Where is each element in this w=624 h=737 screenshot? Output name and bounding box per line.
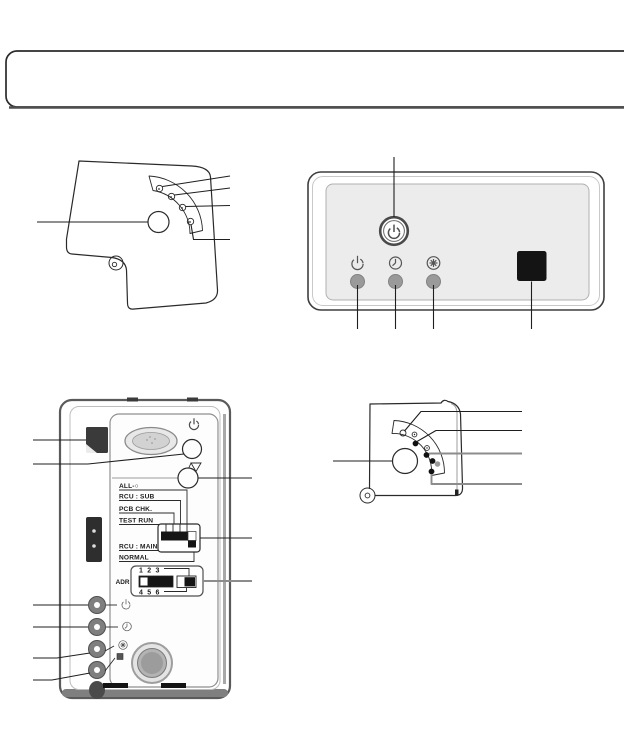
adr-switch-block: 1 2 3 4 5 6 ADR	[116, 566, 252, 597]
mount-tab	[127, 398, 138, 402]
adr-label: ADR	[116, 579, 130, 586]
dip-label-test-run: TEST RUN	[119, 518, 153, 525]
panel-clip	[455, 490, 459, 496]
led-center	[94, 646, 100, 652]
buzzer-oval	[89, 681, 105, 699]
dip-label-pcb-chk: PCB CHK.	[119, 506, 152, 513]
led-dot	[181, 207, 183, 209]
dip-switch-4-slot	[188, 532, 196, 541]
corner-panel-top-diagram	[37, 161, 230, 309]
adr-slide-knob	[185, 577, 196, 586]
led-dot-gray	[435, 461, 441, 467]
callout-line-led1	[163, 176, 231, 187]
mount-bar	[103, 683, 128, 688]
mini-timer-icon	[425, 446, 430, 451]
led-lamps	[156, 185, 193, 224]
lamp-icon	[117, 654, 123, 660]
mini-power-icon	[412, 432, 417, 437]
dip-switch-4-knob	[188, 541, 196, 548]
adr-numbers-bottom: 4 5 6	[139, 590, 161, 597]
round-button	[148, 212, 169, 233]
led-center	[94, 667, 100, 673]
receiver-panel-diagram	[308, 157, 604, 329]
emergency-button	[132, 643, 172, 683]
led-dot	[158, 188, 160, 190]
banner-box	[6, 51, 624, 107]
connector-pin	[92, 544, 96, 548]
wall-controller-diagram: ALL-○ RCU : SUB PCB CHK. TEST RUN RCU : …	[33, 398, 252, 700]
led-center	[94, 624, 100, 630]
power-button	[380, 217, 408, 245]
dip-label-normal: NORMAL	[119, 555, 149, 562]
transmitter-window	[125, 428, 177, 455]
panel-outline	[370, 400, 463, 495]
manual-page: ALL-○ RCU : SUB PCB CHK. TEST RUN RCU : …	[0, 0, 624, 737]
connector-pin	[92, 529, 96, 533]
adr-numbers-top: 1 2 3	[139, 568, 161, 575]
screw-tab	[360, 488, 375, 503]
adr-rotary-knob	[140, 577, 148, 585]
display-face	[326, 184, 589, 300]
mount-tab	[187, 398, 198, 402]
corner-panel-bottom-diagram	[333, 400, 522, 503]
dip-label-rcu-sub: RCU : SUB	[119, 494, 155, 501]
dip-label-all: ALL-○	[119, 483, 139, 490]
mount-bar	[161, 683, 186, 688]
callout-line-eye	[405, 412, 523, 432]
led-arc-strip	[392, 421, 445, 476]
callout-line-led3	[186, 206, 231, 207]
led-dot	[170, 196, 172, 198]
diagram-canvas: ALL-○ RCU : SUB PCB CHK. TEST RUN RCU : …	[0, 0, 624, 737]
header-banner	[6, 51, 624, 108]
dip-label-rcu-main: RCU : MAIN	[119, 544, 158, 551]
dip-switches-1-3	[161, 532, 188, 541]
side-connector	[86, 517, 102, 562]
led-dot	[429, 469, 435, 475]
led-dot	[430, 458, 436, 464]
panel-outline	[67, 161, 218, 309]
led-center	[94, 602, 100, 608]
ir-receiver-window	[517, 251, 547, 281]
led-dot	[424, 452, 430, 458]
round-button	[393, 449, 418, 474]
callout-line-led3	[432, 474, 523, 484]
panel-seam	[451, 404, 457, 495]
led-dot	[189, 221, 191, 223]
